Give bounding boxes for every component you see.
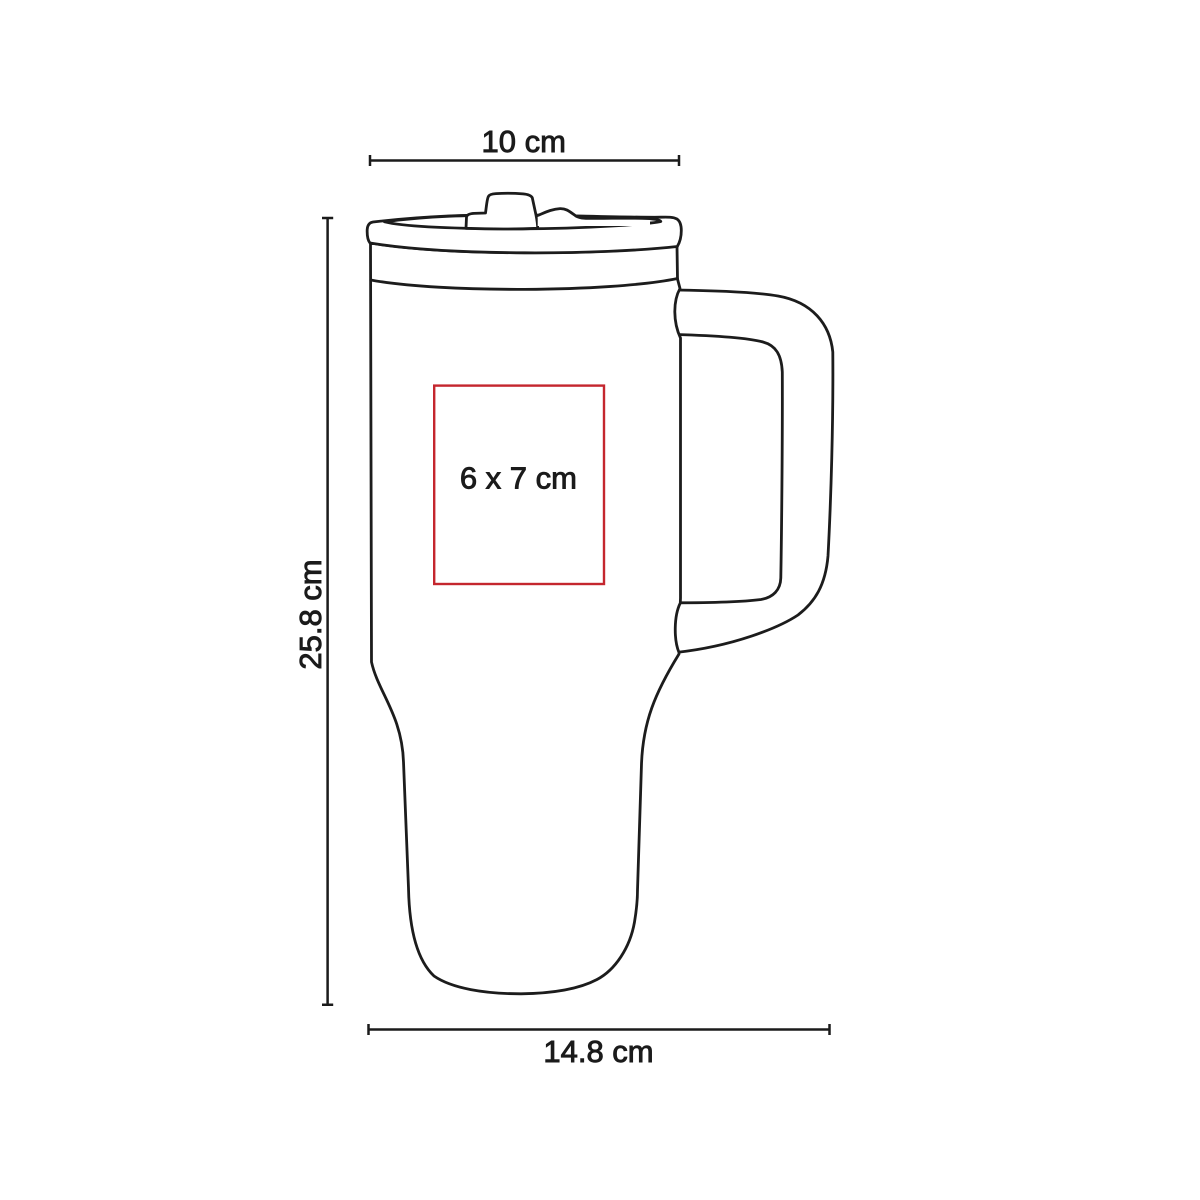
svg-text:10 cm: 10 cm [481,124,565,159]
svg-text:25.8 cm: 25.8 cm [293,559,328,669]
svg-text:14.8 cm: 14.8 cm [543,1034,653,1069]
svg-text:6 x 7 cm: 6 x 7 cm [460,461,577,496]
